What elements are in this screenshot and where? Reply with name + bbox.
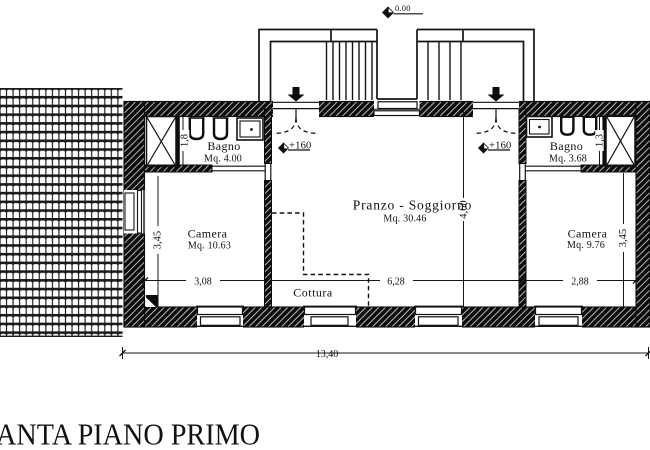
svg-text:0.00: 0.00 <box>395 3 411 13</box>
svg-text:1,8: 1,8 <box>179 134 190 147</box>
svg-text:Mq. 3.68: Mq. 3.68 <box>549 154 587 165</box>
svg-text:Bagno: Bagno <box>207 139 240 153</box>
svg-text:PIANTA PIANO PRIMO: PIANTA PIANO PRIMO <box>0 418 260 450</box>
svg-text:4,60: 4,60 <box>459 200 470 218</box>
svg-text:Camera: Camera <box>568 227 608 241</box>
svg-text:Mq. 10.63: Mq. 10.63 <box>188 241 231 252</box>
svg-text:3,45: 3,45 <box>618 229 629 247</box>
svg-text:+160: +160 <box>289 141 311 152</box>
svg-text:6,28: 6,28 <box>387 277 405 288</box>
svg-text:Pranzo - Soggiorno: Pranzo - Soggiorno <box>353 198 472 213</box>
svg-text:3,08: 3,08 <box>194 277 212 288</box>
svg-text:Cottura: Cottura <box>293 286 333 300</box>
svg-text:Mq. 4.00: Mq. 4.00 <box>204 154 242 165</box>
svg-text:Mq. 9.76: Mq. 9.76 <box>567 240 605 251</box>
svg-text:1,3: 1,3 <box>595 134 606 147</box>
svg-text:Bagno: Bagno <box>550 139 583 153</box>
svg-text:3,45: 3,45 <box>153 231 164 249</box>
svg-text:13,40: 13,40 <box>316 349 339 360</box>
svg-text:Mq. 30.46: Mq. 30.46 <box>383 214 426 225</box>
svg-text:+160: +160 <box>489 141 511 152</box>
svg-text:Camera: Camera <box>188 227 228 241</box>
svg-text:2,88: 2,88 <box>571 277 589 288</box>
